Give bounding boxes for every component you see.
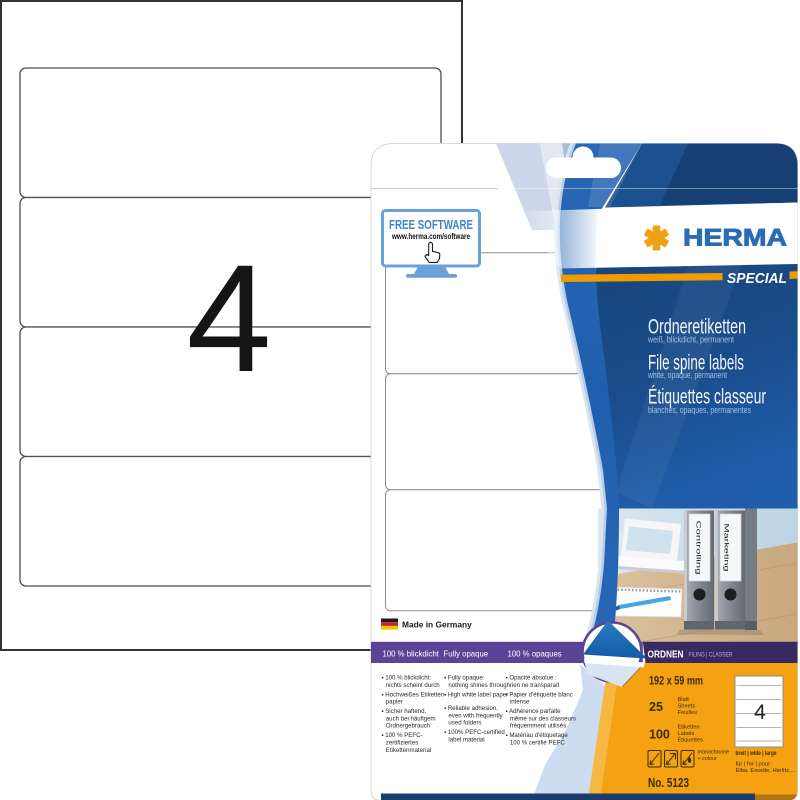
svg-text:4: 4 (186, 233, 271, 404)
svg-text:FREE SOFTWARE: FREE SOFTWARE (389, 218, 473, 232)
svg-text:Made in Germany: Made in Germany (402, 619, 472, 629)
svg-text:nichts scheint durch: nichts scheint durch (386, 682, 440, 689)
svg-text:▪ Opacité absolue :: ▪ Opacité absolue : (506, 675, 558, 682)
svg-text:monochrome: monochrome (698, 750, 729, 756)
svg-text:25: 25 (649, 700, 663, 714)
svg-text:100 % opaques: 100 % opaques (508, 650, 562, 659)
svg-text:www.herma.com/software: www.herma.com/software (391, 231, 470, 241)
svg-text:Blatt: Blatt (678, 697, 690, 703)
svg-text:▪ Matériau d'étiquetage: ▪ Matériau d'étiquetage (506, 732, 569, 739)
svg-text:Etikettenmaterial: Etikettenmaterial (386, 747, 431, 754)
svg-text:Fully opaque: Fully opaque (444, 650, 489, 659)
svg-text:Marketing: Marketing (723, 524, 730, 572)
svg-text:white, opaque, permanent: white, opaque, permanent (647, 370, 727, 380)
svg-text:für | for | pour:: für | for | pour: (736, 761, 773, 767)
svg-text:fréquemment utilisés: fréquemment utilisés (510, 723, 566, 730)
svg-text:papier: papier (386, 699, 403, 706)
svg-text:nothing shines through: nothing shines through (448, 682, 510, 689)
svg-text:blanches, opaques, permanentes: blanches, opaques, permanentes (648, 405, 751, 415)
svg-text:zertifiziertes: zertifiziertes (386, 740, 419, 747)
svg-text:même sur des classeurs: même sur des classeurs (510, 715, 576, 722)
svg-text:No. 5123: No. 5123 (648, 776, 689, 790)
svg-text:auch bei häufigem: auch bei häufigem (386, 715, 436, 722)
svg-text:▪ 100% PEFC-certified: ▪ 100% PEFC-certified (444, 729, 505, 736)
svg-text:▪ Sicher haftend,: ▪ Sicher haftend, (381, 708, 426, 715)
svg-text:breit | wide | large: breit | wide | large (736, 750, 777, 757)
svg-text:Sheets: Sheets (678, 704, 696, 710)
svg-text:used folders: used folders (448, 720, 481, 727)
svg-text:Labels: Labels (678, 731, 695, 737)
svg-text:intense: intense (510, 699, 530, 706)
svg-text:▪ Hochweißes Etiketten-: ▪ Hochweißes Etiketten- (381, 691, 446, 698)
svg-text:HERMA: HERMA (683, 225, 787, 252)
svg-text:Controlling: Controlling (695, 521, 702, 575)
svg-text:▪ Reliable adhesion,: ▪ Reliable adhesion, (444, 705, 498, 712)
svg-text:Elba, Esselte, Herlitz,...: Elba, Esselte, Herlitz,... (736, 768, 796, 774)
svg-text:Feuilles: Feuilles (678, 710, 698, 716)
svg-text:4: 4 (754, 701, 766, 724)
svg-text:100 % certifié PEFC: 100 % certifié PEFC (510, 740, 565, 747)
svg-text:weiß, blickdicht, permanent: weiß, blickdicht, permanent (647, 335, 734, 345)
svg-text:▪ Papier d'étiquette blanc: ▪ Papier d'étiquette blanc (506, 691, 573, 698)
svg-text:▪ 100 % PEFC-: ▪ 100 % PEFC- (381, 732, 422, 739)
svg-text:FILING | CLASSER: FILING | CLASSER (689, 653, 734, 659)
svg-text:even with frequently: even with frequently (448, 712, 503, 719)
svg-text:100 % blickdicht: 100 % blickdicht (383, 650, 440, 659)
svg-text:Ordnergebrauch: Ordnergebrauch (386, 723, 430, 730)
svg-text:Etiketten: Etiketten (678, 725, 700, 731)
svg-text:100: 100 (649, 728, 670, 742)
svg-text:Étiquettes: Étiquettes (678, 737, 703, 744)
svg-text:ORDNEN: ORDNEN (648, 649, 684, 661)
svg-text:label material: label material (448, 736, 484, 743)
svg-text:SPECIAL: SPECIAL (727, 271, 787, 287)
svg-text:rien ne transparaît: rien ne transparaît (510, 682, 560, 689)
svg-text:▪ Adhérence parfaite: ▪ Adhérence parfaite (506, 708, 562, 715)
svg-text:192 x 59 mm: 192 x 59 mm (649, 676, 703, 688)
svg-text:▪ 100 % blickdicht:: ▪ 100 % blickdicht: (381, 675, 431, 682)
svg-text:▪ Fully opaque:: ▪ Fully opaque: (444, 675, 485, 682)
svg-text:▪ High white label paper: ▪ High white label paper (444, 691, 508, 698)
svg-text:+ colour: + colour (698, 756, 718, 762)
